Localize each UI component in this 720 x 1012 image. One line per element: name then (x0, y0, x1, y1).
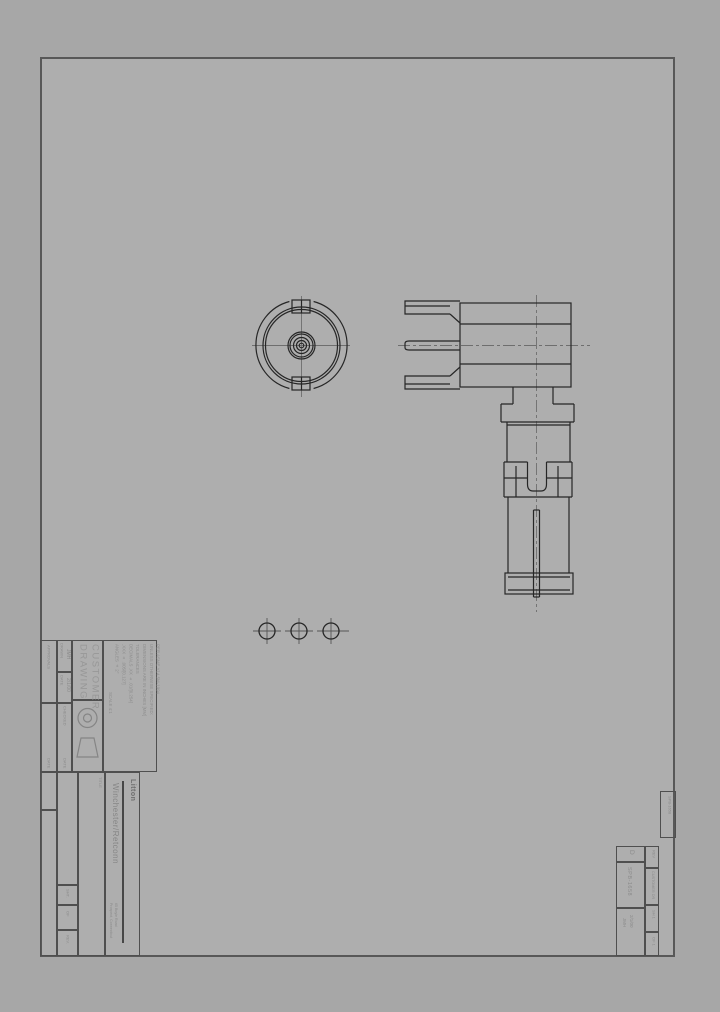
company-name: Winchester/Retconn (111, 783, 120, 864)
nb-drawn-by: JMH (622, 918, 627, 927)
drawing-sheet-page: { "colors": { "paper": "#aeaeae", "backg… (0, 0, 720, 1012)
sht-cell: SHT. (57, 885, 78, 905)
checked-date-label: DATE (62, 758, 66, 768)
note-line: .XXX ± .005/[0.127] (120, 644, 127, 768)
note-line: DIMENSIONS ARE IN INCHES [MM] (140, 644, 147, 768)
rev-strip-cell (40, 810, 57, 956)
edge-label-box: SPB-1658 (660, 791, 676, 838)
drawing-title-line2: DRAWING (75, 644, 90, 700)
rev-label: REV. (65, 935, 69, 944)
doc-type-cell: CUSTOMER DR (645, 868, 659, 905)
sheet-of-label: OF 1 (651, 937, 655, 946)
drawn-label: DRAWN (59, 643, 63, 658)
scale-label: SCALE 4:1 (106, 644, 113, 768)
sheet-no-cell: SH 1 (645, 905, 659, 932)
note-line: UNLESS OTHERWISE SPECIFIED: (147, 644, 154, 768)
tolerance-notes-cell: PER ASME Y14.5M-1994 UNLESS OTHERWISE SP… (103, 640, 157, 772)
date-by-cell: 2/1/00 JMH (616, 908, 645, 956)
company-address-line1: 65 Boyle Road (114, 903, 118, 927)
sheet-no-label: SH 1 (651, 910, 655, 919)
drawn-date-value: 2/1/00 (64, 678, 70, 692)
drawn-date-cell: DATE 2/1/00 (57, 672, 72, 703)
rev-cell: REV. (57, 930, 78, 956)
checked-cell: CHECKED DATE (57, 703, 72, 772)
nb-rev-label: REV (651, 850, 655, 858)
rev-strip-cell (57, 772, 78, 885)
company-logo: Litton (129, 779, 136, 801)
part-title-label: TITLE (98, 777, 102, 788)
company-address-line2: Prospect, Connecticut (109, 903, 113, 938)
drawing-title-cell: CUSTOMER DRAWING (72, 640, 103, 700)
drawn-cell: DRAWN JMH (57, 640, 72, 672)
doc-type-label: CUSTOMER DR (651, 871, 655, 899)
size-cell: D (616, 846, 645, 862)
approvals-date-label: DATE (46, 758, 50, 768)
company-cell: Litton Winchester/Retconn 65 Boyle Road … (105, 772, 140, 956)
approvals-header-label: APPROVALS (46, 645, 50, 669)
note-line: PER ASME Y14.5M-1994 (154, 644, 161, 768)
approvals-date-cell: DATE (40, 703, 57, 772)
edge-label: SPB-1658 (667, 796, 671, 814)
checked-label: CHECKED (62, 706, 66, 726)
logo-rule (122, 781, 124, 943)
of-cell: OF (57, 905, 78, 930)
dwg-no-cell: SPB-1658 (616, 862, 645, 908)
approvals-header-cell: APPROVALS (40, 640, 57, 703)
part-title-cell: TITLE (78, 772, 105, 956)
drawn-value: JMH (64, 649, 70, 659)
note-line: ANGLES ± 2° (113, 644, 120, 768)
sheet-of-cell: OF 1 (645, 932, 659, 956)
note-line: DECIMALS .XX ± .01/[0.254] (126, 644, 133, 768)
rev-strip-cell (40, 772, 57, 810)
dwg-no-value: SPB-1658 (626, 867, 632, 896)
sht-label: SHT. (65, 889, 69, 898)
of-label: OF (65, 911, 69, 917)
nb-rev-cell: REV (645, 846, 659, 868)
third-angle-projection-icon (73, 701, 102, 771)
drawn-date-label: DATE (59, 675, 63, 685)
projection-symbol-cell (72, 700, 103, 772)
note-line: TOLERANCES (133, 644, 140, 768)
size-value: D (627, 850, 635, 855)
nb-date-value: 2/1/00 (629, 915, 634, 928)
